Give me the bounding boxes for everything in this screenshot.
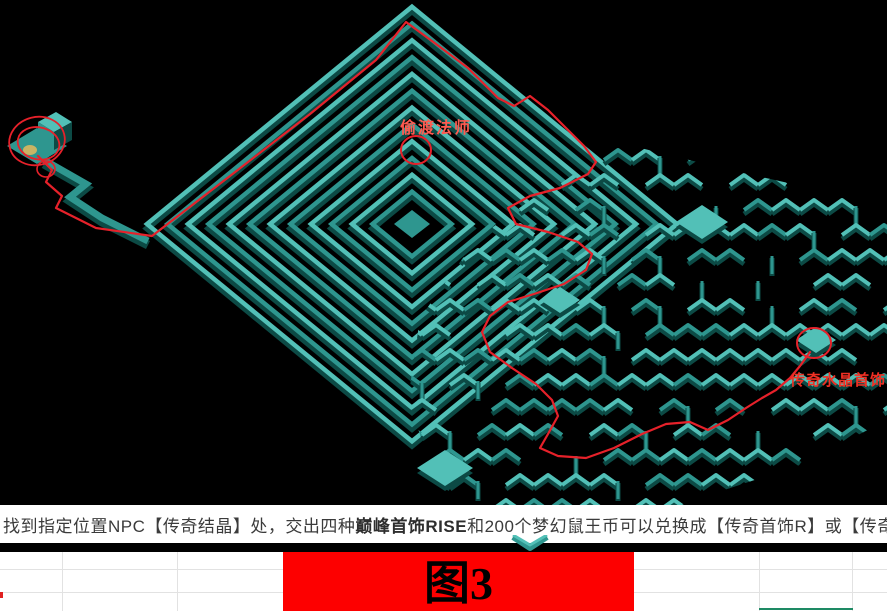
caption-strip: 找到指定位置NPC【传奇结晶】处，交出四种巅峰首饰RISE和200个梦幻鼠王币可… bbox=[0, 505, 887, 543]
spreadsheet-grid[interactable]: 图3 bbox=[0, 552, 887, 611]
maze-map-canvas: 偷渡法师传奇水晶首饰 bbox=[0, 0, 887, 505]
sheet-column-gridline bbox=[62, 552, 63, 611]
caption-part1: 找到指定位置NPC【传奇结晶】处，交出四种 bbox=[3, 517, 355, 536]
sheet-column-gridline bbox=[852, 552, 853, 611]
maze-map-image: 偷渡法师传奇水晶首饰 bbox=[0, 0, 887, 505]
sheet-column-gridline bbox=[177, 552, 178, 611]
figure-label: 图3 bbox=[424, 561, 493, 607]
caption-text: 找到指定位置NPC【传奇结晶】处，交出四种巅峰首饰RISE和200个梦幻鼠王币可… bbox=[0, 512, 887, 537]
maze-bottom-tip bbox=[511, 535, 549, 552]
red-edge-mark bbox=[0, 592, 3, 598]
legend-crystal-jewelry-label: 传奇水晶首饰 bbox=[789, 371, 886, 389]
screenshot-root: 偷渡法师传奇水晶首饰 找到指定位置NPC【传奇结晶】处，交出四种巅峰首饰RISE… bbox=[0, 0, 887, 611]
sheet-column-gridline bbox=[759, 552, 760, 611]
caption-bold-part: 巅峰首饰RISE bbox=[355, 517, 467, 536]
figure-banner: 图3 bbox=[283, 552, 634, 611]
cell-selection-border bbox=[759, 608, 853, 610]
caption-part2: 和200个梦幻鼠王币可以兑换成【传奇首饰R】或【传奇水晶RISE】 bbox=[467, 517, 887, 536]
divider-bar bbox=[0, 543, 887, 552]
npc-teleport-mage-label: 偷渡法师 bbox=[400, 118, 472, 137]
